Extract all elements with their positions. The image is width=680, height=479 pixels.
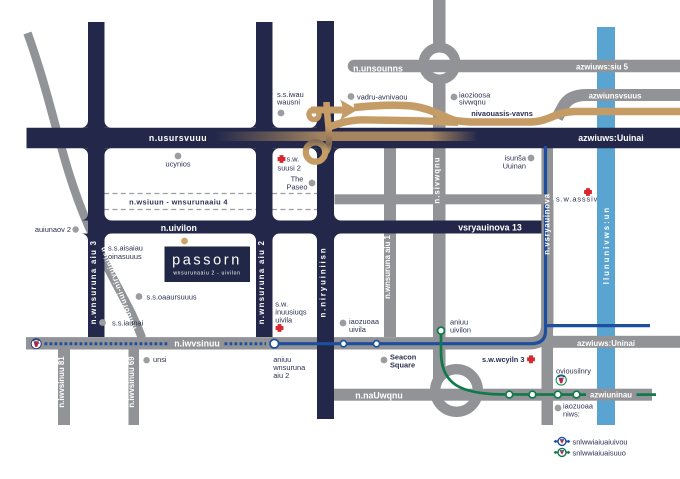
svg-text:uivila: uivila: [349, 325, 367, 334]
svg-text:unsi: unsi: [153, 355, 167, 364]
svg-text:aiu 2: aiu 2: [273, 371, 289, 380]
svg-text:n.uivilon: n.uivilon: [161, 223, 197, 233]
svg-text:azwiuws:Uninai: azwiuws:Uninai: [577, 339, 635, 348]
svg-text:Paseo: Paseo: [287, 183, 308, 192]
svg-text:n.usursvuuu: n.usursvuuu: [149, 133, 207, 143]
svg-text:ucynios: ucynios: [165, 160, 190, 169]
svg-text:llununivws:un: llununivws:un: [602, 206, 611, 284]
svg-text:n.naUwqnu: n.naUwqnu: [355, 391, 402, 401]
svg-text:s.w.asssiv: s.w.asssiv: [556, 195, 598, 204]
svg-text:azwiuws:siu 5: azwiuws:siu 5: [576, 63, 629, 72]
svg-text:nivaouasis-vavns: nivaouasis-vavns: [471, 109, 533, 118]
svg-text:azwiunsvsuus: azwiunsvsuus: [589, 92, 643, 101]
svg-text:snlwwiaiuaiuivou: snlwwiaiuaiuivou: [573, 437, 628, 446]
svg-text:wausni: wausni: [276, 98, 300, 107]
svg-text:n.vsryauinova: n.vsryauinova: [543, 193, 552, 255]
svg-text:passorn: passorn: [172, 253, 242, 269]
svg-text:oviousilnry: oviousilnry: [556, 367, 591, 376]
svg-text:n.wsiuun - wnsurunaaiu 4: n.wsiuun - wnsurunaaiu 4: [129, 197, 228, 206]
svg-text:n.unsounns: n.unsounns: [353, 63, 403, 73]
svg-text:uivilon: uivilon: [450, 326, 471, 335]
svg-text:n.iwvsinuu 81: n.iwvsinuu 81: [57, 356, 66, 408]
svg-text:vadru-avnivaou: vadru-avnivaou: [357, 93, 408, 102]
svg-text:n.wnsuruna aiu 2: n.wnsuruna aiu 2: [257, 240, 266, 325]
svg-text:n.wnsuruna aiu 1: n.wnsuruna aiu 1: [383, 234, 392, 298]
svg-text:Uuinan: Uuinan: [503, 162, 526, 171]
svg-text:s.w.: s.w.: [287, 155, 300, 164]
svg-text:n.wnsuruna aiu 3: n.wnsuruna aiu 3: [89, 240, 98, 325]
svg-text:snlwwiaiuaisuuo: snlwwiaiuaisuuo: [573, 448, 626, 457]
svg-text:s.w.wcyiln 3: s.w.wcyiln 3: [482, 355, 524, 364]
svg-text:oinasuuus: oinasuuus: [108, 252, 142, 261]
svg-text:vsryauinova 13: vsryauinova 13: [458, 223, 522, 233]
svg-text:wnsurunaaiu 2 - uivilon: wnsurunaaiu 2 - uivilon: [173, 271, 240, 277]
svg-text:s.s.oaaursuuus: s.s.oaaursuuus: [147, 293, 197, 302]
svg-text:n.iwvsinuu 69: n.iwvsinuu 69: [127, 356, 136, 408]
svg-text:n.sivwqnu: n.sivwqnu: [433, 156, 442, 203]
svg-text:uivila: uivila: [275, 316, 293, 325]
svg-text:Square: Square: [390, 361, 415, 370]
svg-text:n.iwvsinuu: n.iwvsinuu: [174, 339, 219, 349]
svg-text:n.niryuiniisn: n.niryuiniisn: [319, 246, 328, 317]
svg-text:niws:: niws:: [563, 410, 580, 419]
svg-text:azwiuninau: azwiuninau: [590, 391, 632, 400]
svg-text:s.s.iaunai: s.s.iaunai: [112, 318, 144, 327]
svg-text:auiunaov 2: auiunaov 2: [35, 225, 71, 234]
svg-text:azwiuws:Uuinai: azwiuws:Uuinai: [578, 133, 644, 143]
svg-text:suusi 2: suusi 2: [278, 164, 301, 173]
svg-text:sivwqnu: sivwqnu: [459, 98, 486, 107]
